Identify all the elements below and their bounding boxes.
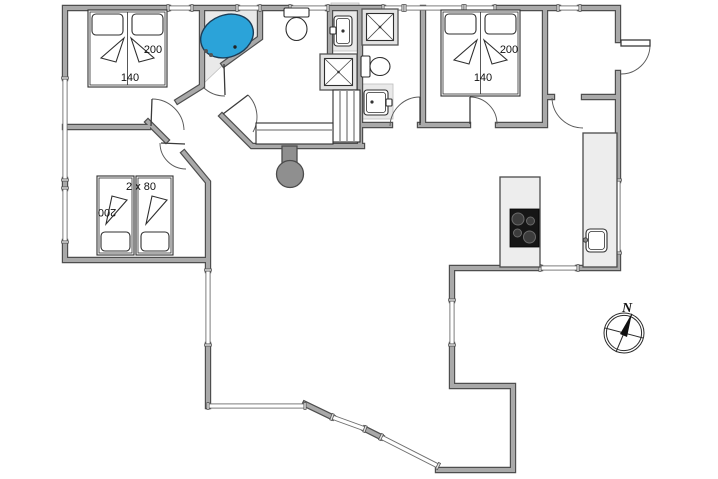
window-cap [62,241,69,243]
bed3-length-label: 200 [98,206,116,218]
hall-living-door-arc [552,98,583,128]
window-glass [237,6,260,10]
pillow [141,232,169,251]
window-icon [205,269,212,346]
tub-drain-dot [233,45,236,48]
window-icon [330,413,367,432]
shower-icon [320,54,357,90]
pillow [445,14,476,34]
pillow [92,14,123,35]
pillow [132,14,163,35]
compass-icon: N [604,301,644,353]
window-glass [168,6,192,10]
hall-bench [256,123,333,144]
entrance-door-arc [621,46,650,74]
window-cap [191,5,193,12]
bathtub-room-door-arc [203,87,225,96]
window-cap [304,403,306,410]
window-glass [63,188,67,242]
floor-plan-drawing: 200 140 200 140 2 x 80 200 N [0,0,718,479]
window-icon [557,5,581,12]
window-cap [236,5,238,12]
bed3-size-label: 2 x 80 [126,181,156,193]
window-cap [449,344,456,346]
floor-plan-page: 200 140 200 140 2 x 80 200 N [0,0,718,479]
wardrobe [333,90,360,142]
window-cap [207,403,209,410]
bed1-length-label: 200 [144,44,162,56]
window-glass [380,435,439,468]
pillow [101,232,130,251]
kitchen-island [500,177,540,267]
pillow [485,14,516,34]
compass-needle [620,313,632,337]
bedroom3-door-leaf [161,143,185,144]
window-glass [540,266,578,270]
bed2-length-label: 200 [500,44,518,56]
kitchen-sink-icon [583,229,607,252]
bed1-width-label: 140 [121,72,139,84]
bedroom2-door-arc [470,97,497,124]
window-icon [378,433,440,469]
window-icon [62,187,69,243]
window-cap [205,269,212,271]
window-cap [62,179,69,181]
window-glass [331,415,365,431]
window-cap [62,187,69,189]
window-icon [539,265,579,272]
fireplace-icon [277,146,304,188]
bed2-width-label: 140 [474,72,492,84]
window-glass [208,404,305,408]
window-cap [404,5,406,12]
window-icon [236,5,261,12]
toilet-icon [284,8,309,41]
bedroom3-door-arc [160,143,186,169]
window-icon [207,403,306,410]
window-glass [206,270,210,345]
tub-tap-dot [209,53,213,57]
bathtub-room-door-leaf [224,64,225,95]
window-cap [577,265,579,272]
bathroom1-door-leaf [223,95,248,114]
shower-icon [362,9,398,45]
compass-north-label: N [621,301,633,316]
entrance-door-leaf [621,40,650,46]
window-cap [62,77,69,79]
window-glass [450,300,454,345]
window-icon [449,299,456,346]
window-icon [167,5,193,12]
window-cap [557,5,559,12]
window-cap [205,344,212,346]
tub-tap-dot [204,49,208,53]
bathroom2-door-arc [390,97,420,126]
window-cap [579,5,581,12]
toilet-icon [361,56,390,77]
window-glass [63,78,67,180]
window-cap [327,5,329,12]
washbasin-icon [364,90,392,115]
window-glass [558,6,580,10]
window-cap [449,299,456,301]
window-cap [259,5,261,12]
window-icon [62,77,69,181]
